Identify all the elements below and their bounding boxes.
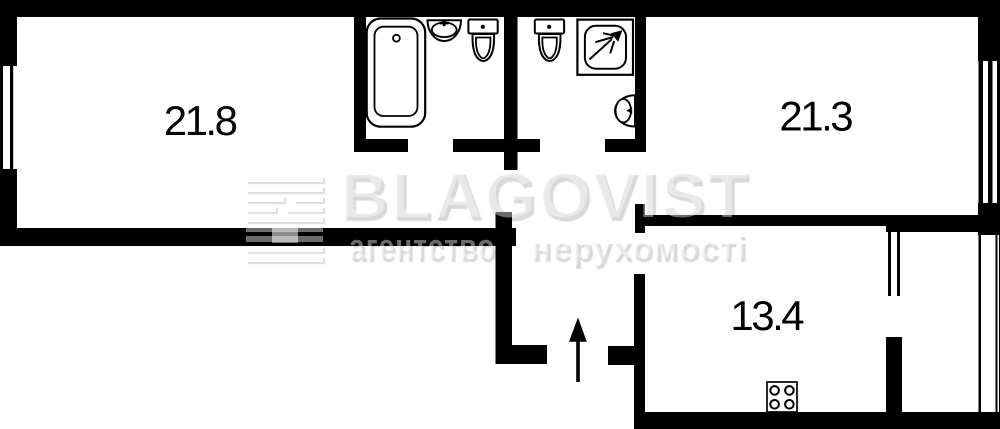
svg-text:21.3: 21.3 xyxy=(779,93,852,140)
svg-text:21.8: 21.8 xyxy=(164,97,237,144)
svg-text:13.4: 13.4 xyxy=(730,292,804,339)
